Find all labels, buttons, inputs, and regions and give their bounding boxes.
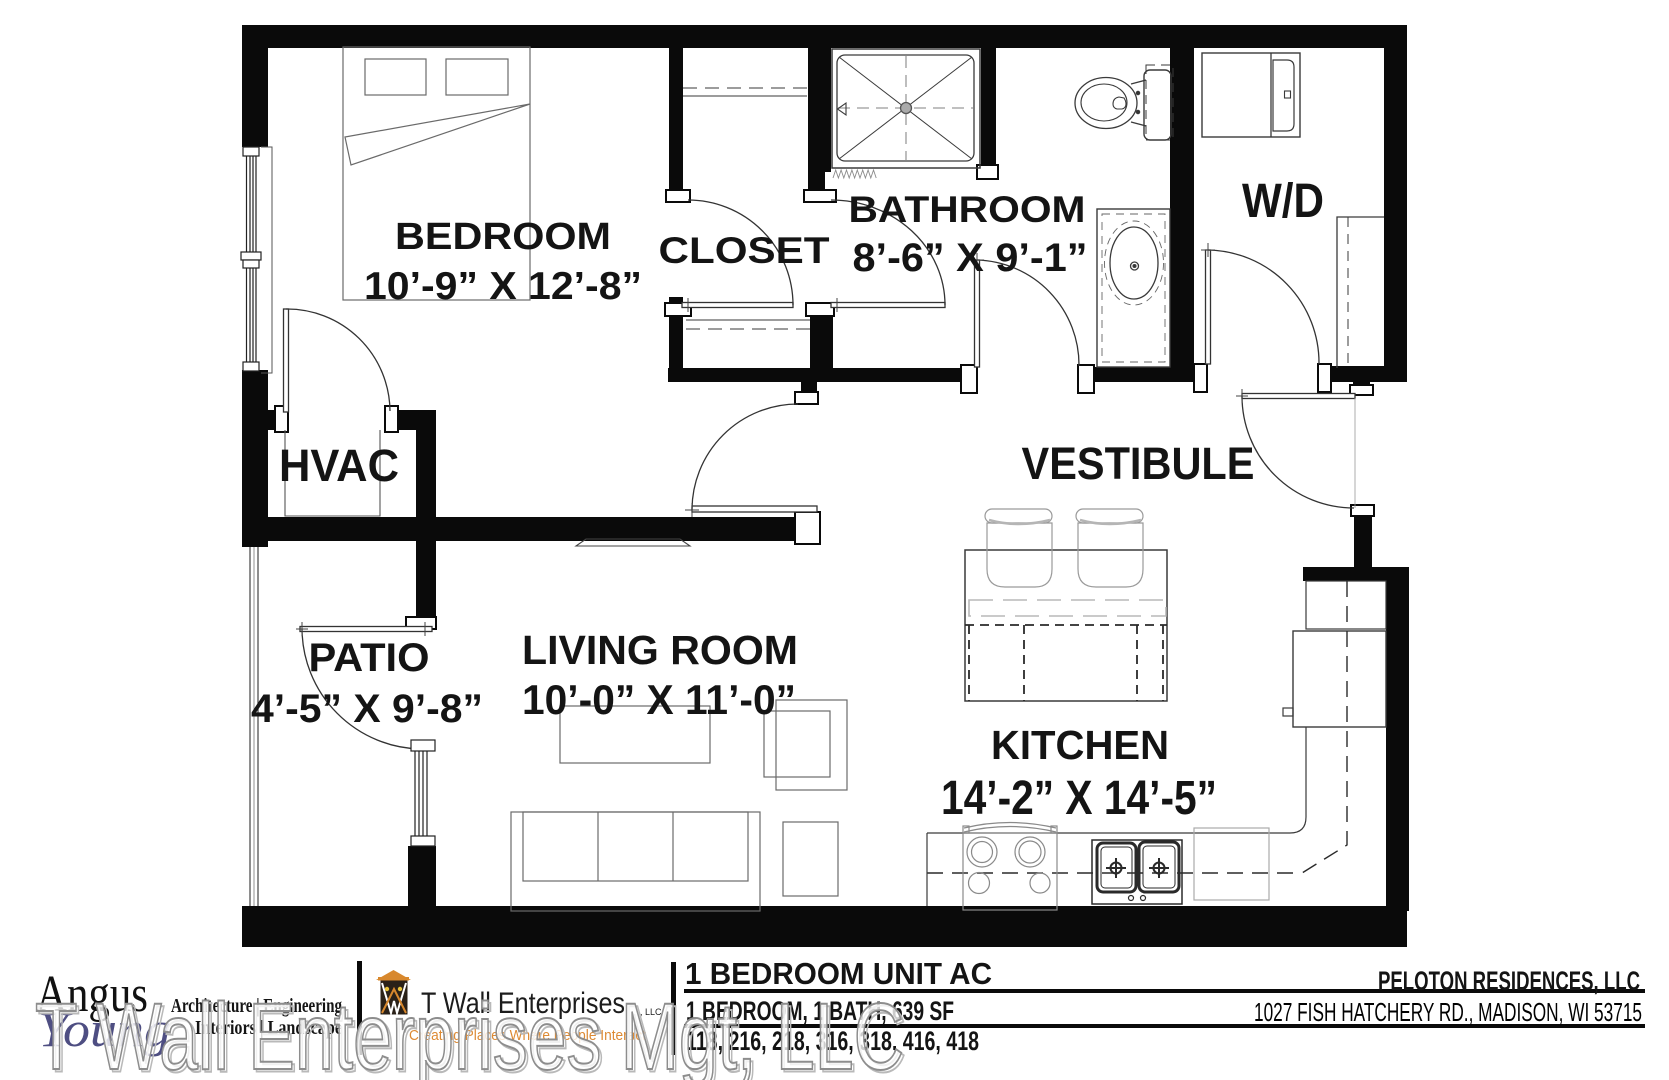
svg-text:1027 FISH HATCHERY RD., MADISO: 1027 FISH HATCHERY RD., MADISON, WI 5371… xyxy=(1254,997,1642,1027)
svg-text:VESTIBULE: VESTIBULE xyxy=(1022,438,1255,489)
svg-text:KITCHEN: KITCHEN xyxy=(991,722,1169,768)
svg-text:8’-6” X 9’-1”: 8’-6” X 9’-1” xyxy=(853,236,1088,280)
svg-text:BEDROOM: BEDROOM xyxy=(395,216,611,258)
svg-text:HVAC: HVAC xyxy=(279,440,399,491)
svg-text:PATIO: PATIO xyxy=(309,636,430,680)
svg-text:4’-5” X 9’-8”: 4’-5” X 9’-8” xyxy=(251,687,483,731)
svg-text:BATHROOM: BATHROOM xyxy=(849,189,1086,230)
svg-text:10’-0” X 11’-0”: 10’-0” X 11’-0” xyxy=(522,676,796,723)
svg-text:W/D: W/D xyxy=(1242,175,1324,228)
svg-text:10’-9” X 12’-8”: 10’-9” X 12’-8” xyxy=(364,265,642,308)
svg-text:T Wall Enterprises Mgt, LLC: T Wall Enterprises Mgt, LLC xyxy=(35,984,904,1080)
svg-text:PELOTON RESIDENCES, LLC: PELOTON RESIDENCES, LLC xyxy=(1378,966,1640,996)
svg-text:14’-2” X 14’-5”: 14’-2” X 14’-5” xyxy=(941,772,1217,825)
svg-text:LIVING ROOM: LIVING ROOM xyxy=(522,627,798,673)
svg-text:CLOSET: CLOSET xyxy=(659,230,830,271)
